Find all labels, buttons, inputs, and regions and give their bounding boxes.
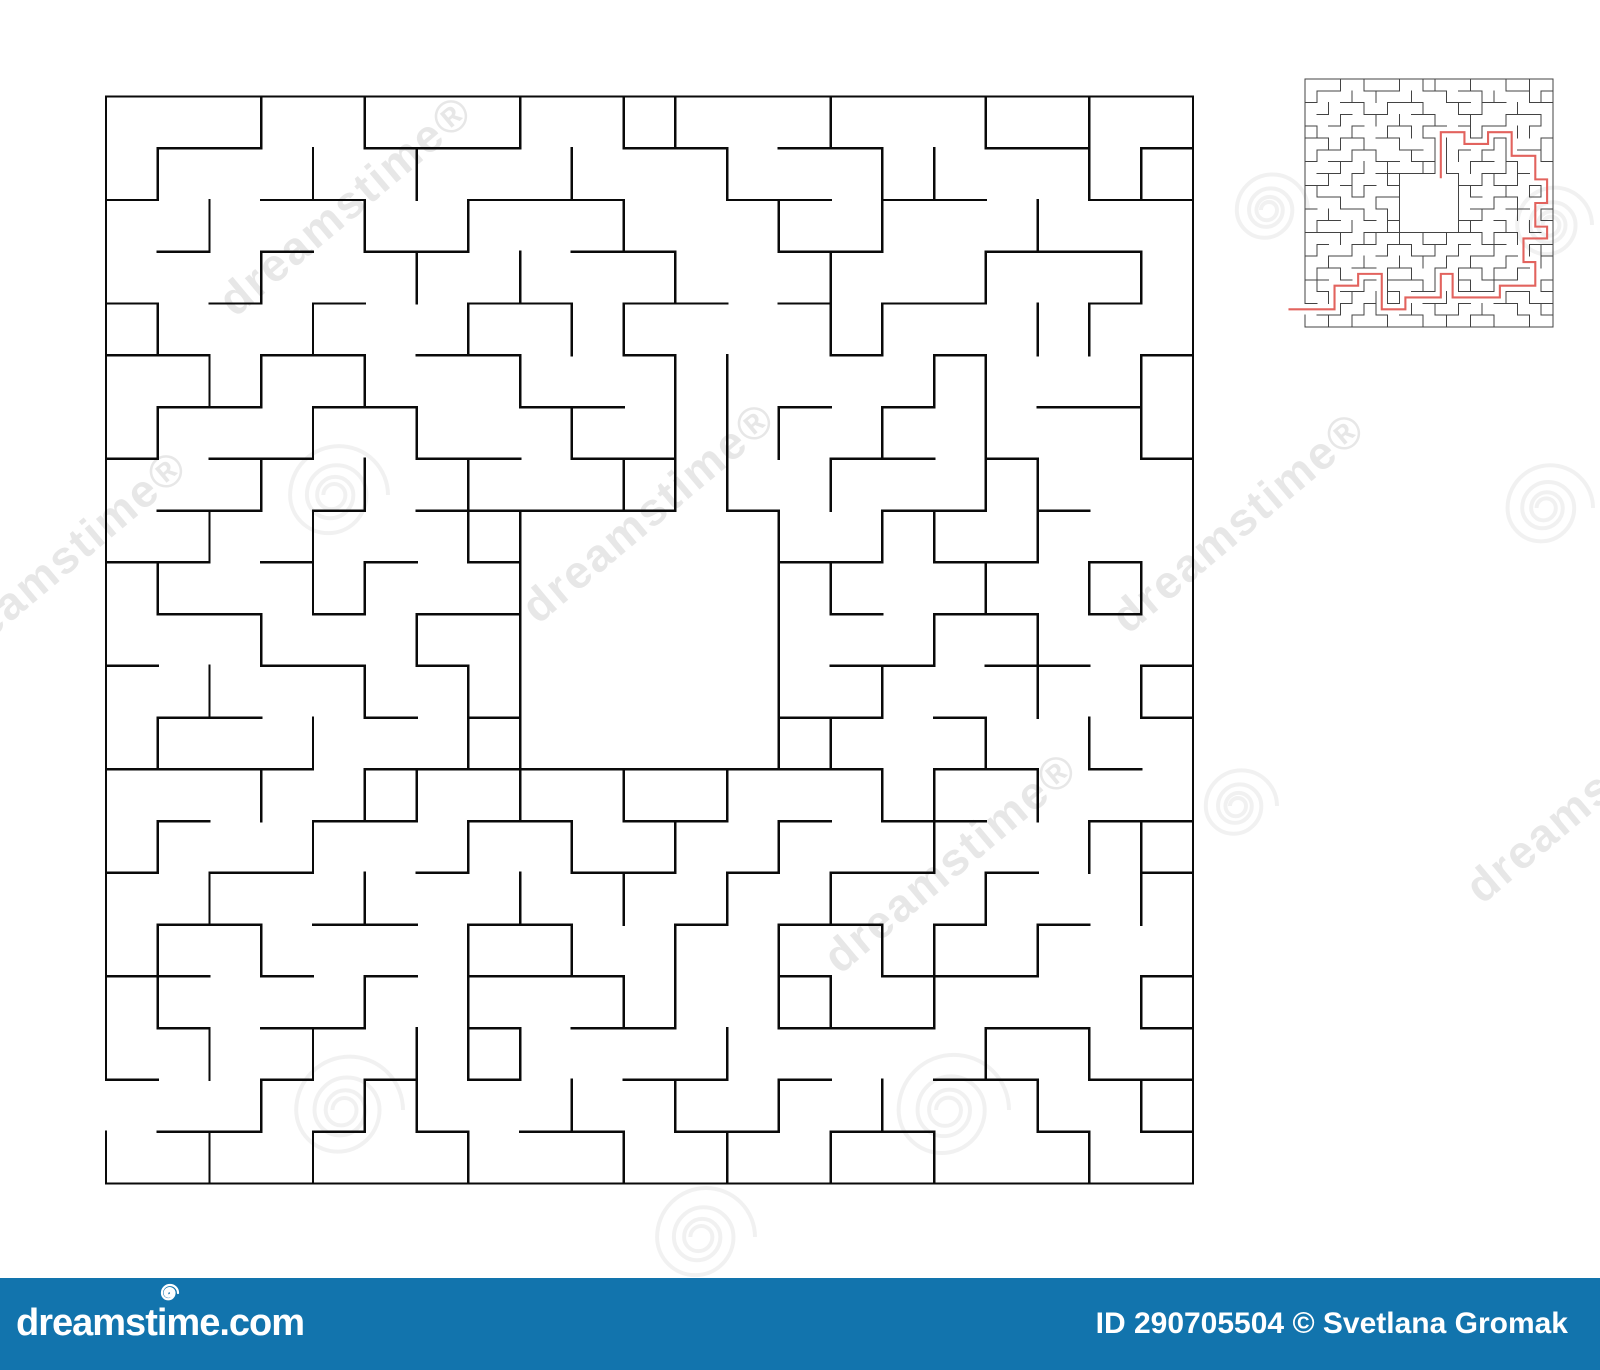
watermark-spirals — [290, 174, 1593, 1275]
large-maze — [106, 97, 1193, 1184]
watermark-spiral-icon — [1508, 465, 1593, 541]
watermark-spiral-icon — [1206, 770, 1277, 833]
watermark-spiral-icon — [1237, 174, 1308, 237]
logo-text: dreamstime.com — [16, 1302, 304, 1344]
watermark-spiral-icon — [657, 1188, 755, 1275]
logo-spiral-icon — [156, 1280, 182, 1306]
watermark-spiral-icon — [1517, 188, 1592, 255]
watermark-spiral-icon — [899, 1055, 1009, 1153]
footer-bar: dreamstime.com ID 290705504 © Svetlana G… — [0, 1278, 1600, 1370]
small-maze-answer-key — [1305, 79, 1553, 327]
image-credit: ID 290705504 © Svetlana Gromak — [1096, 1307, 1568, 1341]
dreamstime-logo: dreamstime.com — [16, 1302, 304, 1345]
maze-graphics — [0, 0, 1600, 1370]
stock-photo-canvas: dreamstime®dreamstime®dreamstime®dreamst… — [0, 0, 1600, 1370]
